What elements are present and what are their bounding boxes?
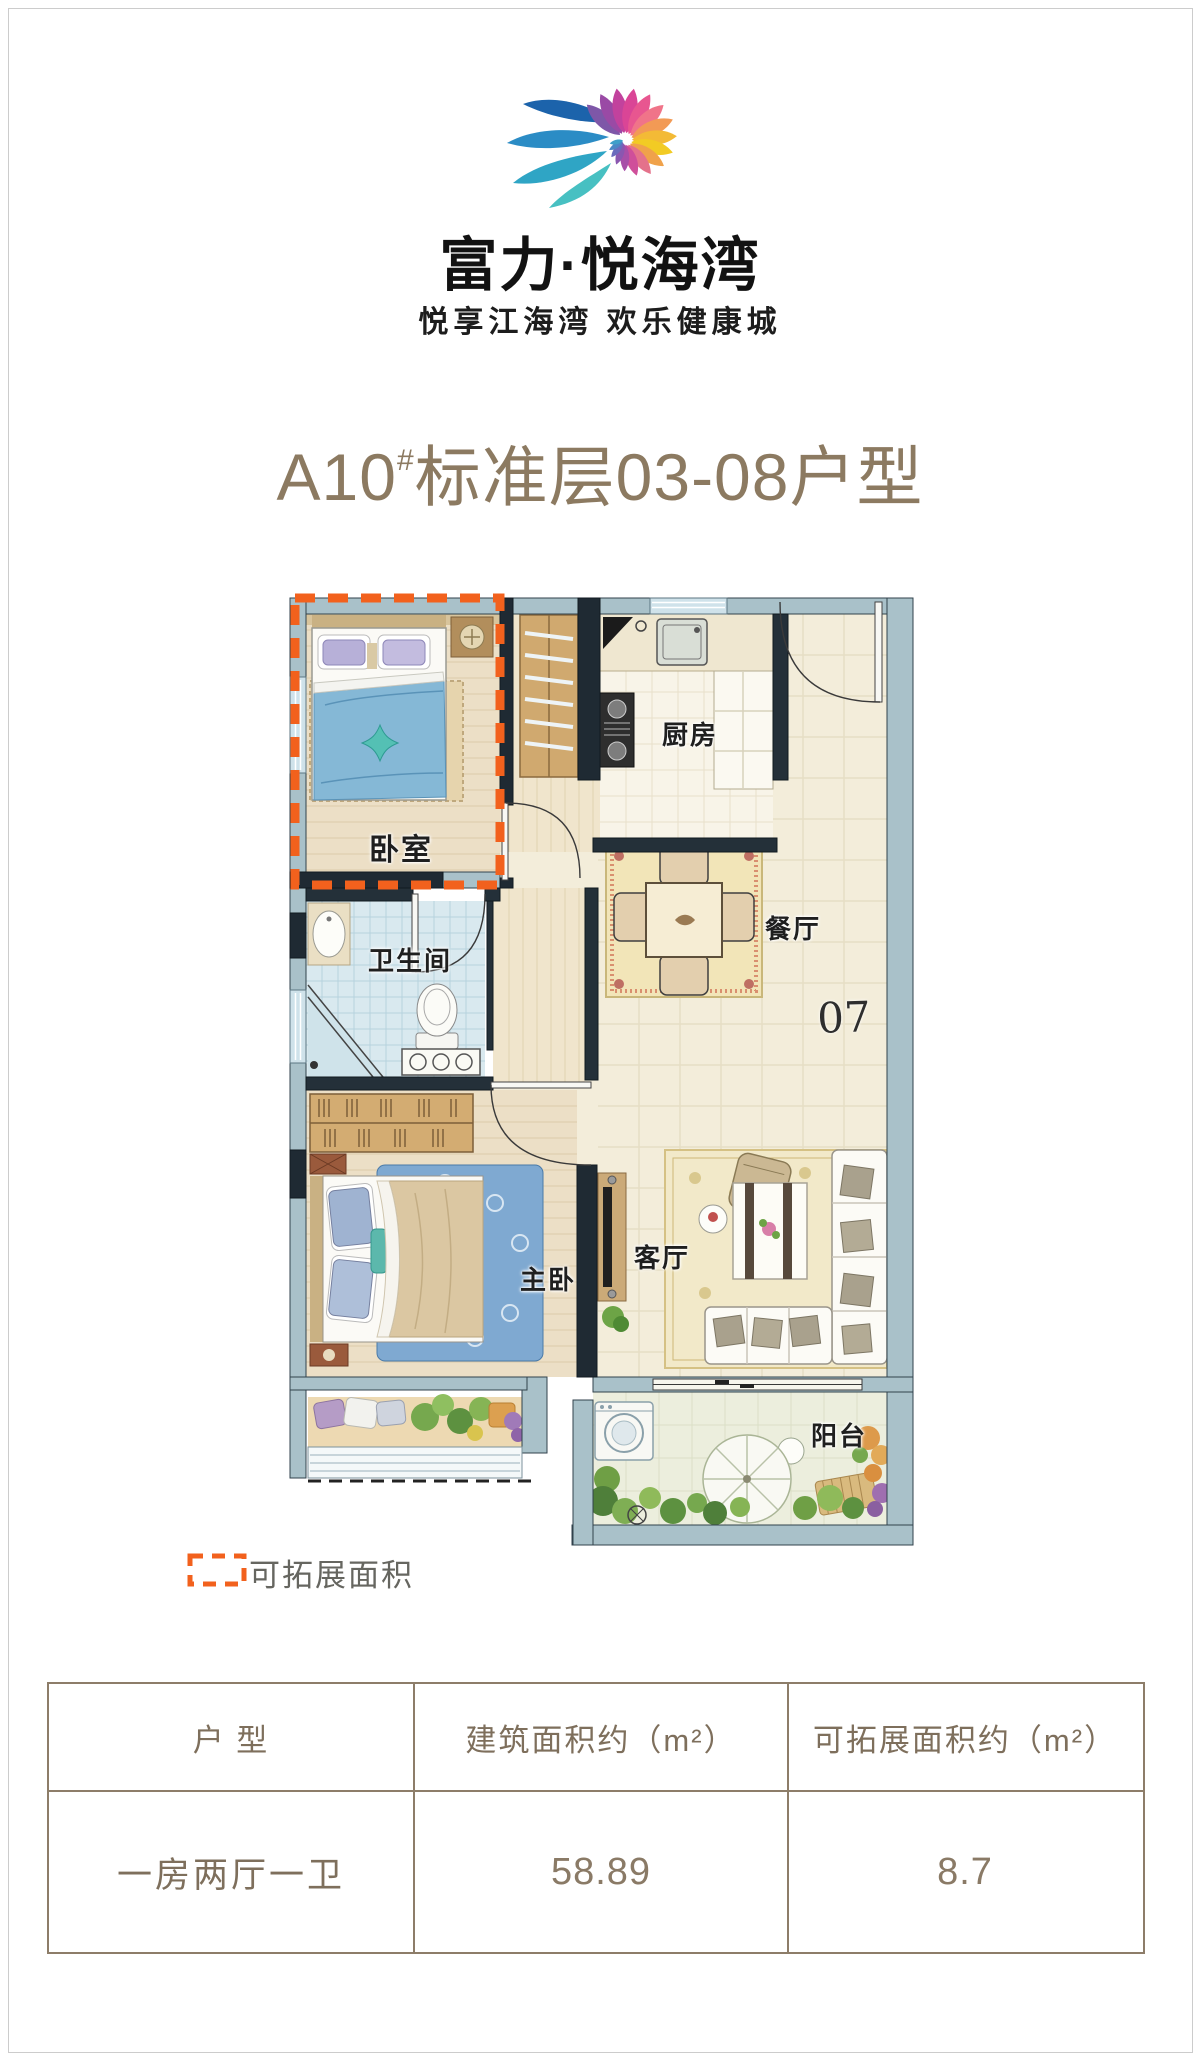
expandable-area-legend-label: 可拓展面积 <box>249 1550 414 1595</box>
room-label-dining: 餐厅 <box>765 909 821 946</box>
unit-number: 07 <box>816 992 871 1043</box>
brand-name: 富力·悦海湾 <box>0 218 1200 302</box>
room-label-bathroom: 卫生间 <box>368 941 452 978</box>
spec-table: 户 型 建筑面积约（m²） 可拓展面积约（m²） 一房两厅一卫 58.89 8.… <box>47 1682 1145 1954</box>
title-prefix: A10 <box>277 440 397 514</box>
room-label-master-bedroom: 主卧 <box>520 1260 576 1297</box>
title-hash: # <box>397 444 415 477</box>
spec-value-build-area: 58.89 <box>413 1792 787 1952</box>
flyer-page: 富力·悦海湾 悦享江海湾 欢乐健康城 A10#标准层03-08户型 <box>0 0 1200 2061</box>
brand-tagline: 悦享江海湾 欢乐健康城 <box>0 297 1200 341</box>
spec-header-unit-type: 户 型 <box>49 1684 413 1790</box>
page-title: A10#标准层03-08户型 <box>0 424 1200 520</box>
expandable-area-legend-icon <box>187 1553 247 1587</box>
room-label-kitchen: 厨房 <box>662 715 718 752</box>
room-label-living-room: 客厅 <box>634 1238 690 1275</box>
spec-header-build-area: 建筑面积约（m²） <box>413 1684 787 1790</box>
spec-value-expand-area: 8.7 <box>787 1792 1141 1952</box>
spec-value-unit-type: 一房两厅一卫 <box>49 1792 413 1952</box>
room-label-balcony: 阳台 <box>811 1416 867 1453</box>
title-suffix: 标准层03-08户型 <box>415 440 924 514</box>
spec-table-header-row: 户 型 建筑面积约（m²） 可拓展面积约（m²） <box>49 1684 1143 1790</box>
floorplan: 卧室 厨房 餐厅 卫生间 主卧 客厅 阳台 07 <box>285 593 915 1548</box>
room-label-bedroom: 卧室 <box>369 825 433 869</box>
brand-logo-flower-icon <box>495 40 705 210</box>
floorplan-drawing <box>285 593 915 1548</box>
spec-header-expand-area: 可拓展面积约（m²） <box>787 1684 1141 1790</box>
spec-table-data-row: 一房两厅一卫 58.89 8.7 <box>49 1790 1143 1952</box>
